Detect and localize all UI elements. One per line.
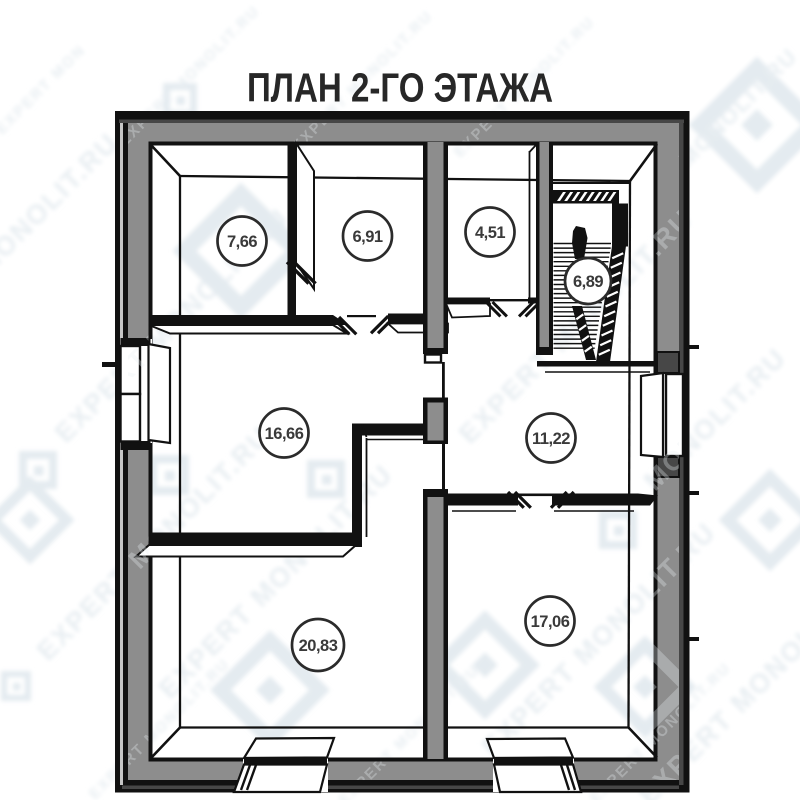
svg-text:20,83: 20,83 <box>299 637 338 655</box>
svg-text:16,66: 16,66 <box>265 425 304 443</box>
svg-text:6,91: 6,91 <box>352 228 382 246</box>
svg-text:ПЛАН 2-ГО ЭТАЖА: ПЛАН 2-ГО ЭТАЖА <box>247 65 553 111</box>
svg-text:11,22: 11,22 <box>532 430 570 448</box>
svg-text:17,06: 17,06 <box>531 613 570 631</box>
svg-text:6,89: 6,89 <box>573 273 603 291</box>
svg-text:7,66: 7,66 <box>227 233 257 251</box>
svg-text:4,51: 4,51 <box>475 224 505 242</box>
